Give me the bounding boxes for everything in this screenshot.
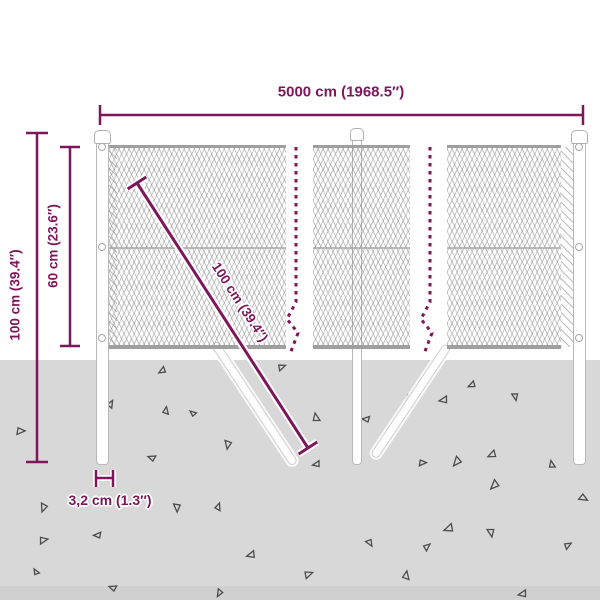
- label-total-height: 100 cm (39.4″): [8, 249, 23, 340]
- dimension-post-diameter: [96, 470, 113, 487]
- dimension-total-height: [26, 133, 48, 462]
- fence-dimension-diagram: 5000 cm (1968.5″) 100 cm (39.4″) 60 cm (…: [0, 0, 600, 600]
- label-total-width: 5000 cm (1968.5″): [278, 84, 404, 101]
- label-mesh-height: 60 cm (23.6″): [46, 204, 61, 288]
- break-line-right: [421, 147, 432, 354]
- break-line-left: [287, 147, 298, 354]
- dimension-total-width: [100, 105, 583, 125]
- label-post-diameter: 3,2 cm (1.3″): [69, 492, 152, 508]
- dimension-mesh-height: [60, 147, 80, 346]
